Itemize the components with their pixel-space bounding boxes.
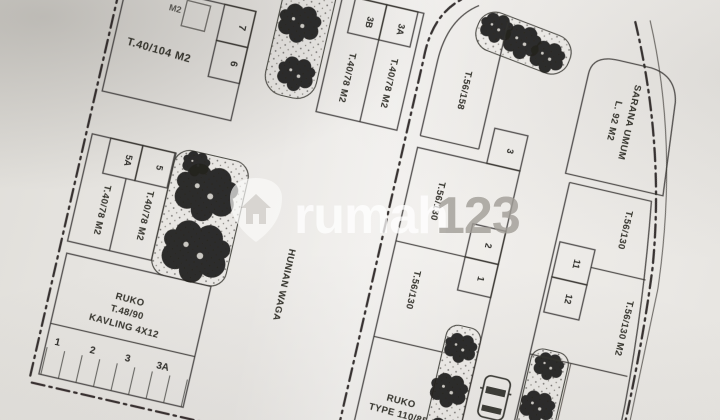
plot-divider <box>360 40 379 122</box>
plot-label-t56-130-r-up: T.56/130 <box>615 210 635 251</box>
lot-number-12: 12 <box>562 293 574 305</box>
clipped-top-label: M2 <box>168 2 183 15</box>
shield-house-logo-icon <box>230 178 282 242</box>
plot-label-t56-130-r-lo: T.56/130 M2 <box>612 299 635 357</box>
lot-number-3b: 3B <box>363 16 375 30</box>
strip-number-3a: 3A <box>155 360 170 374</box>
plot-label-t56-158: T.56/158 <box>454 70 474 111</box>
plot-label-t40-78-c: T.40/78 M2 <box>336 52 358 104</box>
lot-number-6: 6 <box>227 60 239 68</box>
strip-number-1: 1 <box>53 337 61 349</box>
strip-number-3: 3 <box>124 353 132 365</box>
lot-number-7: 7 <box>235 24 247 32</box>
lot-number-3: 3 <box>505 148 516 155</box>
plot-label-t40-78-a: T.40/78 M2 <box>91 184 113 236</box>
road-bottom <box>32 383 252 420</box>
scanned-site-plan: T.40/104 M2 7 6 5A 5 T.40/78 M2 T.40/78 … <box>0 0 720 420</box>
strip-number-2: 2 <box>88 345 96 357</box>
plot-divider <box>374 336 442 352</box>
plot-label-t56-130-lo: T.56/130 <box>403 269 423 310</box>
rumah123-watermark: rumah 123 <box>230 178 520 245</box>
plot-label-t40-78-d: T.40/78 M2 <box>378 57 400 109</box>
lot-number-3a-top: 3A <box>394 23 406 37</box>
watermark-suffix-text: 123 <box>436 187 520 245</box>
plot-label-t40-104: T.40/104 M2 <box>125 36 192 66</box>
car-icon <box>474 374 515 420</box>
lot-number-5a: 5A <box>122 154 134 168</box>
lot-number-1: 1 <box>475 275 486 282</box>
watermark-brand-text: rumah <box>294 187 448 245</box>
lot-number-5: 5 <box>154 164 165 171</box>
plot-divider <box>591 267 646 280</box>
plot-label-t40-78-b: T.40/78 M2 <box>134 190 156 242</box>
lot-number-11: 11 <box>570 258 582 270</box>
street-label-hunian: HUNIAN WAGA <box>270 248 297 322</box>
clipped-top-plot-fragment: M2 <box>166 0 211 31</box>
lot-box-6 <box>208 40 248 83</box>
ruko-strip-ticks <box>41 347 188 407</box>
right-block <box>496 54 702 420</box>
